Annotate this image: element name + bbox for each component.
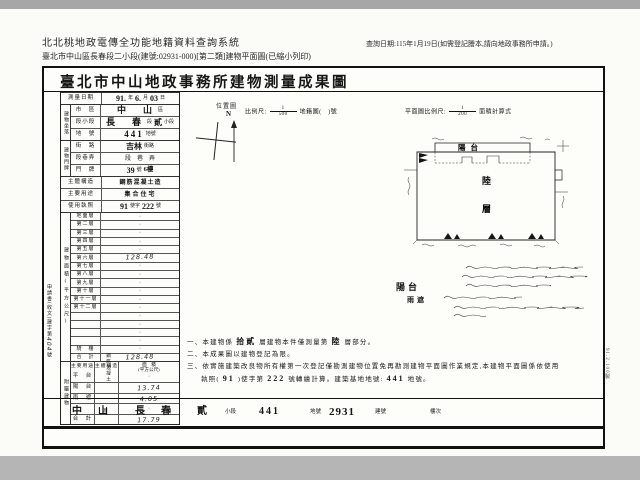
- note4-year: 91: [220, 374, 238, 383]
- scanner-bottom-bar: [0, 456, 640, 480]
- floor-area-row: 合 計128.48: [71, 353, 179, 361]
- location-map-label: 位置圖: [216, 101, 237, 110]
- floor-area-value: ·: [101, 263, 179, 270]
- plan-scale-fraction: 1200: [449, 106, 476, 118]
- floor-area-value: ·: [101, 337, 179, 344]
- attached-area-value: ·: [119, 372, 179, 382]
- address-group-label: 建物門牌: [61, 141, 71, 176]
- license-type: 使字: [130, 204, 140, 209]
- note1-floor: 陸: [329, 337, 345, 346]
- floor-area-row: 騎 樓·: [71, 345, 179, 353]
- license-row: 使用執照 91使字222號: [61, 200, 179, 212]
- floor-area-value: ·: [101, 313, 179, 320]
- floor-label: [71, 329, 101, 336]
- balcony-label: 陽台: [458, 142, 483, 152]
- floor-area-row: 第十一層·: [71, 295, 179, 303]
- floor-area-row: ·: [71, 336, 179, 344]
- survey-day: 03: [150, 95, 158, 103]
- note4-lot: 441: [384, 374, 408, 383]
- strip-building-number-unit: 建號: [375, 399, 386, 425]
- lot-value: 441: [124, 130, 144, 139]
- street-value: 吉林: [126, 143, 142, 151]
- district-label: 市 區: [71, 105, 101, 116]
- unit-month: 月: [143, 96, 148, 101]
- scanner-top-bar: [0, 0, 640, 9]
- floor-area-row: ·: [71, 320, 179, 328]
- attached-structure-value: 鋼筋混凝土: [96, 345, 119, 390]
- floor-area-value: ·: [101, 238, 179, 245]
- usage-value: 集合住宅: [102, 189, 179, 200]
- building-site-section: 建物坐落 市 區 中 山區 段小段 長 春段貳小段 地 號 441地號: [61, 104, 179, 140]
- floor-area-value: ·: [101, 271, 179, 278]
- floor-label: 地面層: [71, 213, 101, 220]
- attached-area-value: 13.74: [119, 382, 179, 394]
- building-info-table: 測量日期 91.年 6.月 03日 建物坐落 市 區 中 山區 段小段 長 春段…: [60, 92, 180, 425]
- lot-unit: 地號: [146, 132, 156, 137]
- section-row: 段小段 長 春段貳小段: [71, 116, 179, 128]
- floor-label: [71, 321, 101, 328]
- section-value: 長 春: [106, 118, 145, 127]
- district-row: 市 區 中 山區: [71, 105, 179, 116]
- door-label: 門 牌: [71, 165, 101, 176]
- floor-area-row: 第六層128.48: [71, 253, 179, 261]
- floor-label: [71, 313, 101, 320]
- note4-license-no: 222: [264, 374, 288, 383]
- street-row: 街 路 吉林街路: [71, 141, 179, 152]
- note1-total-floors: 拾貳: [233, 337, 259, 346]
- note1-pre: 一、本建物係: [187, 339, 233, 346]
- calc-balcony-label: 陽台: [396, 280, 420, 293]
- notes-block: 一、本建物係拾貳層建物本件僅測量第陸層部分。 二、本成果圖以建物登記為限。 三、…: [187, 336, 605, 386]
- strip-district-unit: 區: [102, 399, 108, 425]
- floor-label: [71, 337, 101, 344]
- floor-area-row: 第二層·: [71, 220, 179, 228]
- street-unit: 街路: [144, 144, 154, 149]
- floor-area-row: ·: [71, 328, 179, 336]
- note4-mid: )使字第: [238, 376, 264, 383]
- attached-use: 陽 台: [71, 383, 95, 393]
- attached-header-row: 主要用途 主體構造 面 積 (平方公尺): [71, 362, 179, 372]
- floor-plan-drawing: 陽台 陸 層: [402, 132, 612, 250]
- subsection-value: 貳: [154, 119, 162, 127]
- margin-application-note: 申請書(收文)建字第404號: [45, 284, 52, 396]
- floor-label: 第六層: [71, 254, 101, 261]
- survey-document-frame: 臺北市中山地政事務所建物測量成果圖 測量日期 91.年 6.月 03日 建物坐落…: [42, 66, 605, 449]
- floor-area-value: ·: [101, 230, 179, 237]
- floor-area-row: 第三層·: [71, 229, 179, 237]
- strip-lot: 441: [259, 399, 280, 425]
- floor-number-char: 陸: [482, 175, 491, 186]
- system-title: 北北桃地政電傳全功能地籍資料查詢系統: [42, 34, 240, 49]
- note-line-4: 執照(91)使字第222號轉繪計算。建築基地地號:441地號。: [187, 373, 605, 386]
- section-unit: 段: [147, 120, 152, 125]
- floor-label: 第五層: [71, 246, 101, 253]
- structure-label: 主體構造: [61, 177, 102, 188]
- strip-section-unit: 段: [166, 399, 172, 425]
- note4-suffix: 地號。: [408, 376, 431, 383]
- note4-mid2: 號轉繪計算。建築基地地號:: [288, 376, 383, 383]
- floor-area-group-label: 建物面積(平方公尺): [61, 213, 71, 361]
- unit-day: 日: [160, 96, 165, 101]
- subsection-unit: 小段: [164, 120, 174, 125]
- floor-label: 第七層: [71, 263, 101, 270]
- map-scale: 比例尺:1500地籍圖( )號: [245, 106, 337, 118]
- lane-value: 段 巷 弄: [101, 153, 179, 164]
- floor-label: 第八層: [71, 271, 101, 278]
- building-address-section: 建物門牌 街 路 吉林街路 段巷弄 段 巷 弄 門 牌 39號6樓: [61, 140, 179, 176]
- door-floor: 6樓: [144, 167, 154, 174]
- survey-month: 6.: [135, 95, 141, 103]
- floor-area-section: 建物面積(平方公尺) 地面層·第二層·第三層·第四層·第五層·第六層128.48…: [61, 212, 179, 361]
- license-year: 91: [120, 203, 128, 211]
- attached-use: 平 台: [71, 372, 95, 382]
- section-label: 段小段: [71, 117, 101, 128]
- map-scale-denominator: 500: [270, 111, 297, 118]
- margin-note-handwritten: 404: [45, 337, 52, 351]
- lane-row: 段巷弄 段 巷 弄: [71, 152, 179, 164]
- survey-date-value: 91.年 6.月 03日: [102, 93, 179, 104]
- floor-area-row: ·: [71, 312, 179, 320]
- plan-scale-prefix: 平面圖比例尺:: [405, 109, 446, 115]
- floor-area-row: 地面層·: [71, 213, 179, 220]
- plan-scale-denominator: 200: [449, 111, 476, 118]
- attached-area-header: 面 積 (平方公尺): [119, 362, 179, 372]
- attached-building-row: 陽 台13.74: [71, 382, 179, 393]
- floor-area-row: 第七層·: [71, 262, 179, 270]
- north-label: N: [226, 110, 231, 118]
- site-group-label: 建物坐落: [61, 105, 71, 140]
- floor-area-row: 第十二層·: [71, 303, 179, 311]
- floor-area-value: ·: [101, 221, 179, 228]
- query-date: 查詢日期:115年1月19日(如需登記謄本,請向地政事務所申請。): [366, 39, 553, 49]
- floor-area-value: ·: [101, 288, 179, 295]
- lot-label: 地 號: [71, 129, 101, 140]
- floor-label: 第十層: [71, 288, 101, 295]
- scanned-survey-page: { "header": { "system_title": "北北桃地政電傳全功…: [0, 0, 640, 480]
- floor-unit-char: 層: [482, 203, 491, 214]
- floor-area-value: ·: [101, 296, 179, 303]
- attached-use-header: 主要用途: [71, 362, 95, 372]
- document-title: 臺北市中山地政事務所建物測量成果圖: [60, 71, 349, 92]
- floor-label: 第二層: [71, 221, 101, 228]
- survey-date-row: 測量日期 91.年 6.月 03日: [61, 92, 179, 104]
- note-line-2: 二、本成果圖以建物登記為限。: [187, 349, 605, 361]
- print-code: 91.2.100製: [603, 348, 610, 380]
- survey-year: 91.: [116, 95, 126, 103]
- map-scale-prefix: 比例尺:: [245, 109, 267, 115]
- survey-date-label: 測量日期: [61, 93, 102, 104]
- note4-pre: 執照(: [201, 376, 220, 383]
- lot-row: 地 號 441地號: [71, 128, 179, 140]
- document-subtitle: 臺北市中山區長春段二小段(建號:02931-000)[第二類]建物平面圖(已縮小…: [42, 51, 311, 62]
- floor-area-row: 第八層·: [71, 270, 179, 278]
- address-strip: 中 山 區 長 春 段 貳 小段 441 地號 2931 建號 樓次: [44, 398, 603, 429]
- license-label: 使用執照: [61, 201, 102, 212]
- district-unit: 區: [158, 108, 163, 113]
- usage-row: 主要用途 集合住宅: [61, 188, 179, 200]
- calc-canopy-label: 雨遮: [407, 295, 427, 305]
- floor-label: 第九層: [71, 279, 101, 286]
- strip-subsection-unit: 小段: [225, 399, 236, 425]
- floor-area-value: ·: [101, 279, 179, 286]
- floor-area-row: 第四層·: [71, 237, 179, 245]
- note-line-1: 一、本建物係拾貳層建物本件僅測量第陸層部分。: [187, 336, 605, 349]
- floor-area-value: ·: [101, 321, 179, 328]
- street-label: 街 路: [71, 141, 101, 152]
- unit-year: 年: [128, 96, 133, 101]
- floor-label: 第十一層: [71, 296, 101, 303]
- floor-area-value: ·: [101, 304, 179, 311]
- map-scale-suffix: 地籍圖( )號: [300, 109, 338, 115]
- margin-note-text: 申請書(收文)建字第: [45, 284, 52, 337]
- floor-area-row: 第十層·: [71, 287, 179, 295]
- usage-label: 主要用途: [61, 189, 102, 200]
- area-calc-handwriting: [414, 260, 614, 322]
- strip-floor-unit: 樓次: [430, 399, 441, 425]
- note1-suffix: 層部分。: [345, 339, 376, 346]
- license-number: 222: [142, 203, 154, 211]
- margin-note-suffix: 號: [45, 352, 52, 358]
- door-unit: 號: [137, 168, 142, 173]
- district-value: 中 山: [117, 106, 156, 115]
- strip-building-number: 2931: [329, 399, 355, 425]
- floor-label: 第三層: [71, 230, 101, 237]
- strip-subsection: 貳: [197, 399, 210, 425]
- floor-area-value: ·: [101, 213, 179, 220]
- road-cross-icon: [192, 120, 240, 162]
- door-row: 門 牌 39號6樓: [71, 164, 179, 176]
- structure-usage-section: 主體構造 鋼筋混凝土造 主要用途 集合住宅 使用執照 91使字222號: [61, 176, 179, 212]
- lane-label: 段巷弄: [71, 153, 101, 164]
- floor-label: 第十二層: [71, 304, 101, 311]
- structure-value: 鋼筋混凝土造: [102, 177, 179, 188]
- structure-row: 主體構造 鋼筋混凝土造: [61, 177, 179, 188]
- strip-lot-unit: 地號: [310, 399, 321, 425]
- floor-area-value: ·: [101, 329, 179, 336]
- door-number: 39: [127, 167, 135, 175]
- map-scale-fraction: 1500: [270, 106, 297, 118]
- plan-scale-suffix: 面積計算式: [479, 109, 512, 115]
- floor-label: 第四層: [71, 238, 101, 245]
- note-line-3: 三、依實施建築改良物所有權第一次登記僅勘測建物位置免再勘測建物平面圖作業規定,本…: [187, 361, 605, 373]
- attached-building-row: 平 台·: [71, 372, 179, 382]
- plan-scale: 平面圖比例尺:1200面積計算式: [405, 106, 512, 118]
- floor-area-row: 第九層·: [71, 278, 179, 286]
- license-unit: 號: [156, 204, 161, 209]
- note1-mid: 層建物本件僅測量第: [259, 339, 328, 346]
